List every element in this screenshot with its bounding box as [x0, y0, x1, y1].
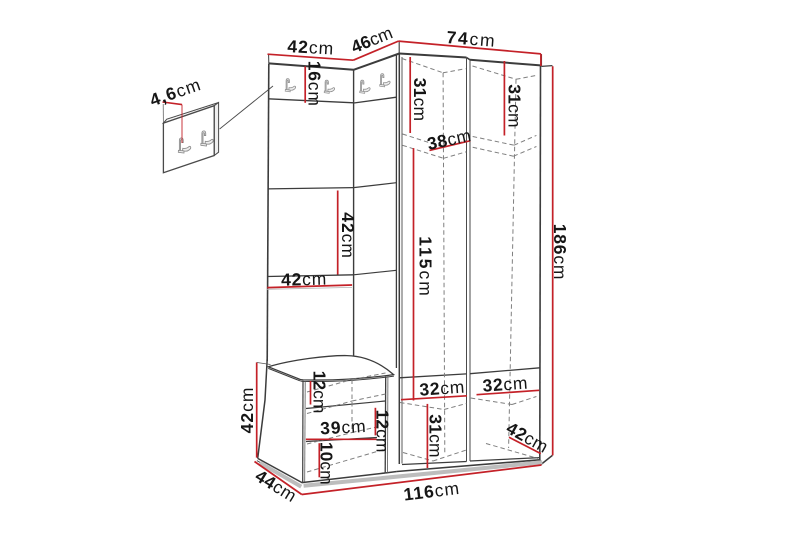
svg-text:42cm: 42cm: [338, 212, 358, 259]
svg-text:31cm: 31cm: [505, 84, 525, 128]
svg-text:42cm: 42cm: [237, 387, 257, 434]
svg-text:42cm: 42cm: [287, 36, 335, 58]
svg-text:42cm: 42cm: [281, 269, 328, 290]
svg-text:12cm: 12cm: [373, 410, 393, 453]
svg-text:74cm: 74cm: [446, 27, 497, 51]
svg-text:16cm: 16cm: [305, 61, 325, 107]
svg-text:32cm: 32cm: [419, 377, 466, 400]
svg-text:31cm: 31cm: [410, 78, 430, 122]
svg-text:31cm: 31cm: [426, 414, 446, 458]
svg-text:10cm: 10cm: [317, 442, 337, 485]
svg-text:32cm: 32cm: [482, 373, 529, 396]
svg-text:39cm: 39cm: [320, 416, 367, 438]
svg-text:4,6cm: 4,6cm: [147, 74, 204, 110]
svg-text:12cm: 12cm: [309, 371, 329, 414]
svg-text:42cm: 42cm: [503, 418, 552, 457]
svg-text:115cm: 115cm: [416, 236, 436, 298]
svg-text:186cm: 186cm: [550, 224, 570, 281]
